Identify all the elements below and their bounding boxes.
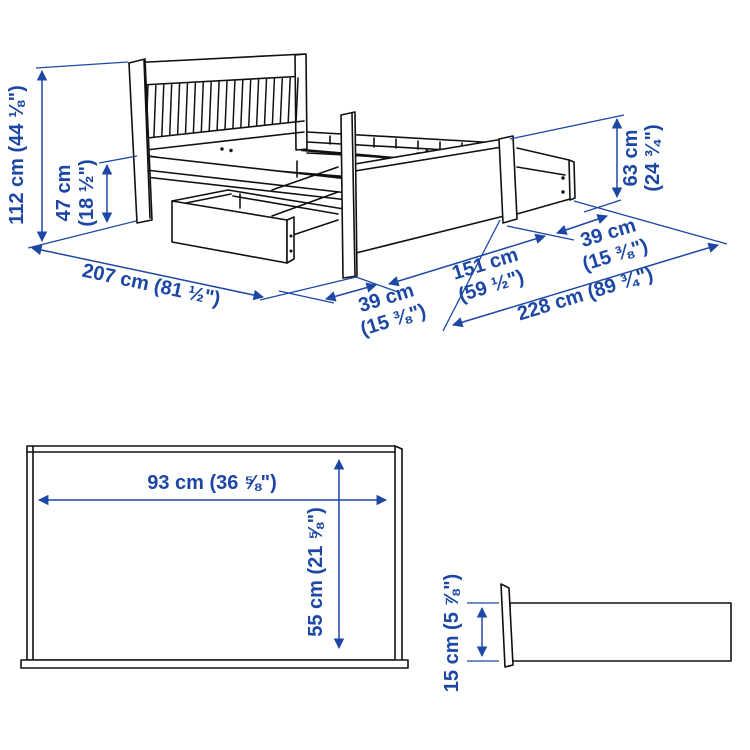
headboard-slats xyxy=(146,77,298,138)
bed-length-label: 207 cm (81 ½") xyxy=(80,260,222,311)
side-rail-height-label-line1: 47 cm xyxy=(53,165,75,222)
headboard-height-label: 112 cm (44 ⅛") xyxy=(6,85,28,225)
footboard xyxy=(341,112,504,278)
diagram-canvas: 112 cm (44 ⅛") 47 cm (18 ½") 207 cm (81 … xyxy=(0,0,750,750)
side-rail-height-label-line2: (18 ½") xyxy=(76,159,98,226)
drawer-side-dimensions: 15 cm (5 ⅞") xyxy=(441,574,499,692)
storage-drawer-detached xyxy=(499,136,575,223)
drawer-front-width-label: 93 cm (36 ⅝") xyxy=(147,472,277,494)
footboard-height-label-line2: (24 ¾") xyxy=(642,124,664,191)
near-side-rail xyxy=(137,155,348,200)
bed-frame-drawing xyxy=(129,54,575,278)
bed-dimension-diagram: 112 cm (44 ⅛") 47 cm (18 ½") 207 cm (81 … xyxy=(0,0,750,750)
headboard xyxy=(129,54,307,223)
drawer-front-view: 93 cm (36 ⅝") 55 cm (21 ⅝") xyxy=(21,446,408,668)
drawer-side-view: 15 cm (5 ⅞") xyxy=(441,574,731,692)
drawer-front-height-label: 55 cm (21 ⅝") xyxy=(305,507,327,637)
footboard-height-label-line1: 63 cm xyxy=(620,130,642,187)
drawer-box-height-label: 15 cm (5 ⅞") xyxy=(441,574,463,692)
